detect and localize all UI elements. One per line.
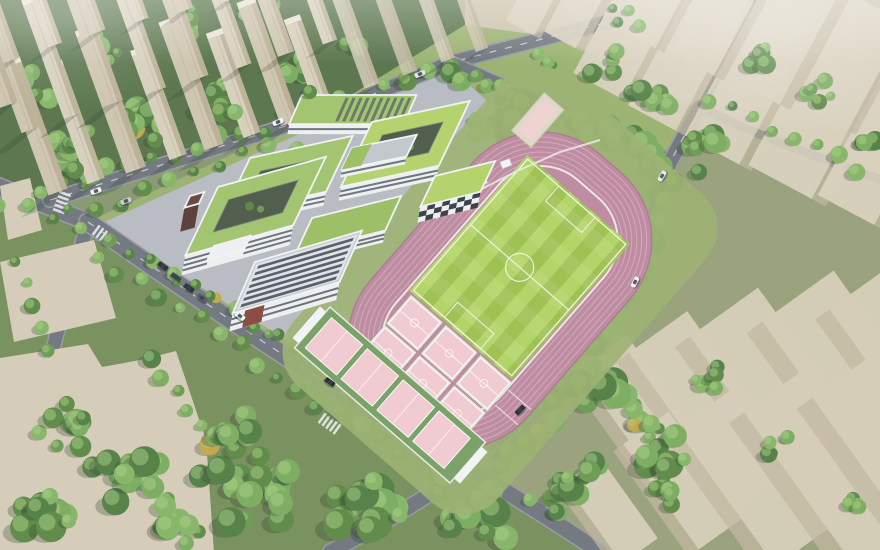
tree-highlight <box>138 181 147 190</box>
tree-highlight <box>147 153 153 159</box>
tree-highlight <box>273 373 279 379</box>
tree-highlight <box>158 516 171 529</box>
tree-highlight <box>328 486 341 499</box>
tree-highlight <box>39 514 56 531</box>
tree-highlight <box>156 497 168 509</box>
tree-highlight <box>144 478 156 490</box>
tree-highlight <box>33 426 42 435</box>
tree-highlight <box>764 437 771 444</box>
campus-aerial-rendering <box>0 0 880 550</box>
tree-highlight <box>176 303 182 309</box>
tree-highlight <box>549 504 558 513</box>
tree-highlight <box>197 420 203 426</box>
tree-highlight <box>22 199 30 207</box>
tree-highlight <box>90 203 99 212</box>
tree-highlight <box>278 461 292 475</box>
tree-highlight <box>104 490 119 505</box>
tree-highlight <box>29 499 42 512</box>
tree-highlight <box>692 165 701 174</box>
tree-highlight <box>137 273 144 280</box>
tree-highlight <box>104 234 112 242</box>
tree-highlight <box>481 80 489 88</box>
tree-highlight <box>524 494 531 501</box>
tree-highlight <box>215 162 221 168</box>
tree-highlight <box>237 407 249 419</box>
tree-highlight <box>260 128 267 135</box>
tree-highlight <box>239 421 253 435</box>
tree-highlight <box>25 299 34 308</box>
tree-highlight <box>657 459 669 471</box>
tree-highlight <box>64 205 69 210</box>
tree-highlight <box>109 268 118 277</box>
tree-highlight <box>853 501 861 509</box>
tree-highlight <box>179 516 191 528</box>
courtyard-tree <box>257 206 264 213</box>
tree-highlight <box>665 488 673 496</box>
tree-highlight <box>309 401 317 409</box>
tree-highlight <box>270 493 284 507</box>
tree-highlight <box>180 537 189 546</box>
tree-highlight <box>644 432 651 439</box>
tree-highlight <box>326 511 343 528</box>
tree-highlight <box>228 105 237 114</box>
tree-highlight <box>628 419 636 427</box>
tree-highlight <box>42 345 49 352</box>
tree-highlight <box>68 162 78 172</box>
tree-highlight <box>76 223 83 230</box>
tree-highlight <box>213 104 224 115</box>
tree-highlight <box>843 498 852 507</box>
tree-highlight <box>36 322 44 330</box>
tree-highlight <box>190 167 195 172</box>
tree-highlight <box>63 515 71 523</box>
tree-highlight <box>251 466 264 479</box>
tree-highlight <box>191 280 197 286</box>
tree-highlight <box>44 409 56 421</box>
tree-highlight <box>163 173 172 182</box>
tree-highlight <box>151 290 161 300</box>
tree-highlight <box>393 508 402 517</box>
tree-highlight <box>304 86 312 94</box>
tree-highlight <box>562 472 569 479</box>
tree-highlight <box>220 426 232 438</box>
tree-highlight <box>813 140 819 146</box>
tree-highlight <box>644 416 654 426</box>
tree-highlight <box>366 473 376 483</box>
tree-highlight <box>144 351 154 361</box>
tree-highlight <box>250 359 259 368</box>
tree-highlight <box>379 80 385 86</box>
tree-highlight <box>692 375 698 381</box>
tree-highlight <box>93 252 100 259</box>
tree-highlight <box>116 465 127 476</box>
tree-highlight <box>649 482 658 491</box>
tree-highlight <box>72 437 84 449</box>
tree-highlight <box>832 147 842 157</box>
tree-highlight <box>205 291 211 297</box>
tree-highlight <box>580 462 592 474</box>
tree-highlight <box>479 525 489 535</box>
tree-highlight <box>252 448 263 459</box>
tree-highlight <box>174 386 180 392</box>
courtyard-tree <box>245 202 254 211</box>
tree-highlight <box>153 371 162 380</box>
tree-highlight <box>857 135 866 144</box>
tree-highlight <box>849 165 859 175</box>
tree-highlight <box>237 336 245 344</box>
tree-highlight <box>782 431 790 439</box>
tree-highlight <box>265 330 270 335</box>
tree-highlight <box>126 250 132 256</box>
tree-highlight <box>52 440 59 447</box>
tree-highlight <box>209 458 225 474</box>
tree-highlight <box>453 73 464 84</box>
tree-highlight <box>710 368 719 377</box>
tree-highlight <box>665 426 678 439</box>
tree-highlight <box>60 397 69 406</box>
tree-highlight <box>219 510 235 526</box>
tree-highlight <box>192 143 200 151</box>
tree-highlight <box>273 329 280 336</box>
tree-highlight <box>148 133 157 142</box>
tree-highlight <box>181 405 188 412</box>
tree-highlight <box>214 327 222 335</box>
tree-highlight <box>239 483 254 498</box>
tree-highlight <box>471 70 478 77</box>
tree-highlight <box>43 489 52 498</box>
tree-highlight <box>11 257 17 263</box>
tree-highlight <box>49 214 55 220</box>
tree-highlight <box>710 382 718 390</box>
tree-highlight <box>77 412 85 420</box>
tree-highlight <box>444 520 455 531</box>
tree-highlight <box>97 451 111 465</box>
tree-highlight <box>495 527 509 541</box>
aerial-scene-canvas <box>0 0 880 550</box>
tree-highlight <box>206 86 216 96</box>
tree-highlight <box>347 487 361 501</box>
tree-highlight <box>690 142 698 150</box>
tree-highlight <box>637 446 650 459</box>
tree-highlight <box>132 449 149 466</box>
tree-highlight <box>359 518 374 533</box>
tree-highlight <box>24 278 29 283</box>
tree-highlight <box>198 310 205 317</box>
tree-highlight <box>147 254 153 260</box>
tree-highlight <box>35 187 42 194</box>
tree-highlight <box>679 454 686 461</box>
